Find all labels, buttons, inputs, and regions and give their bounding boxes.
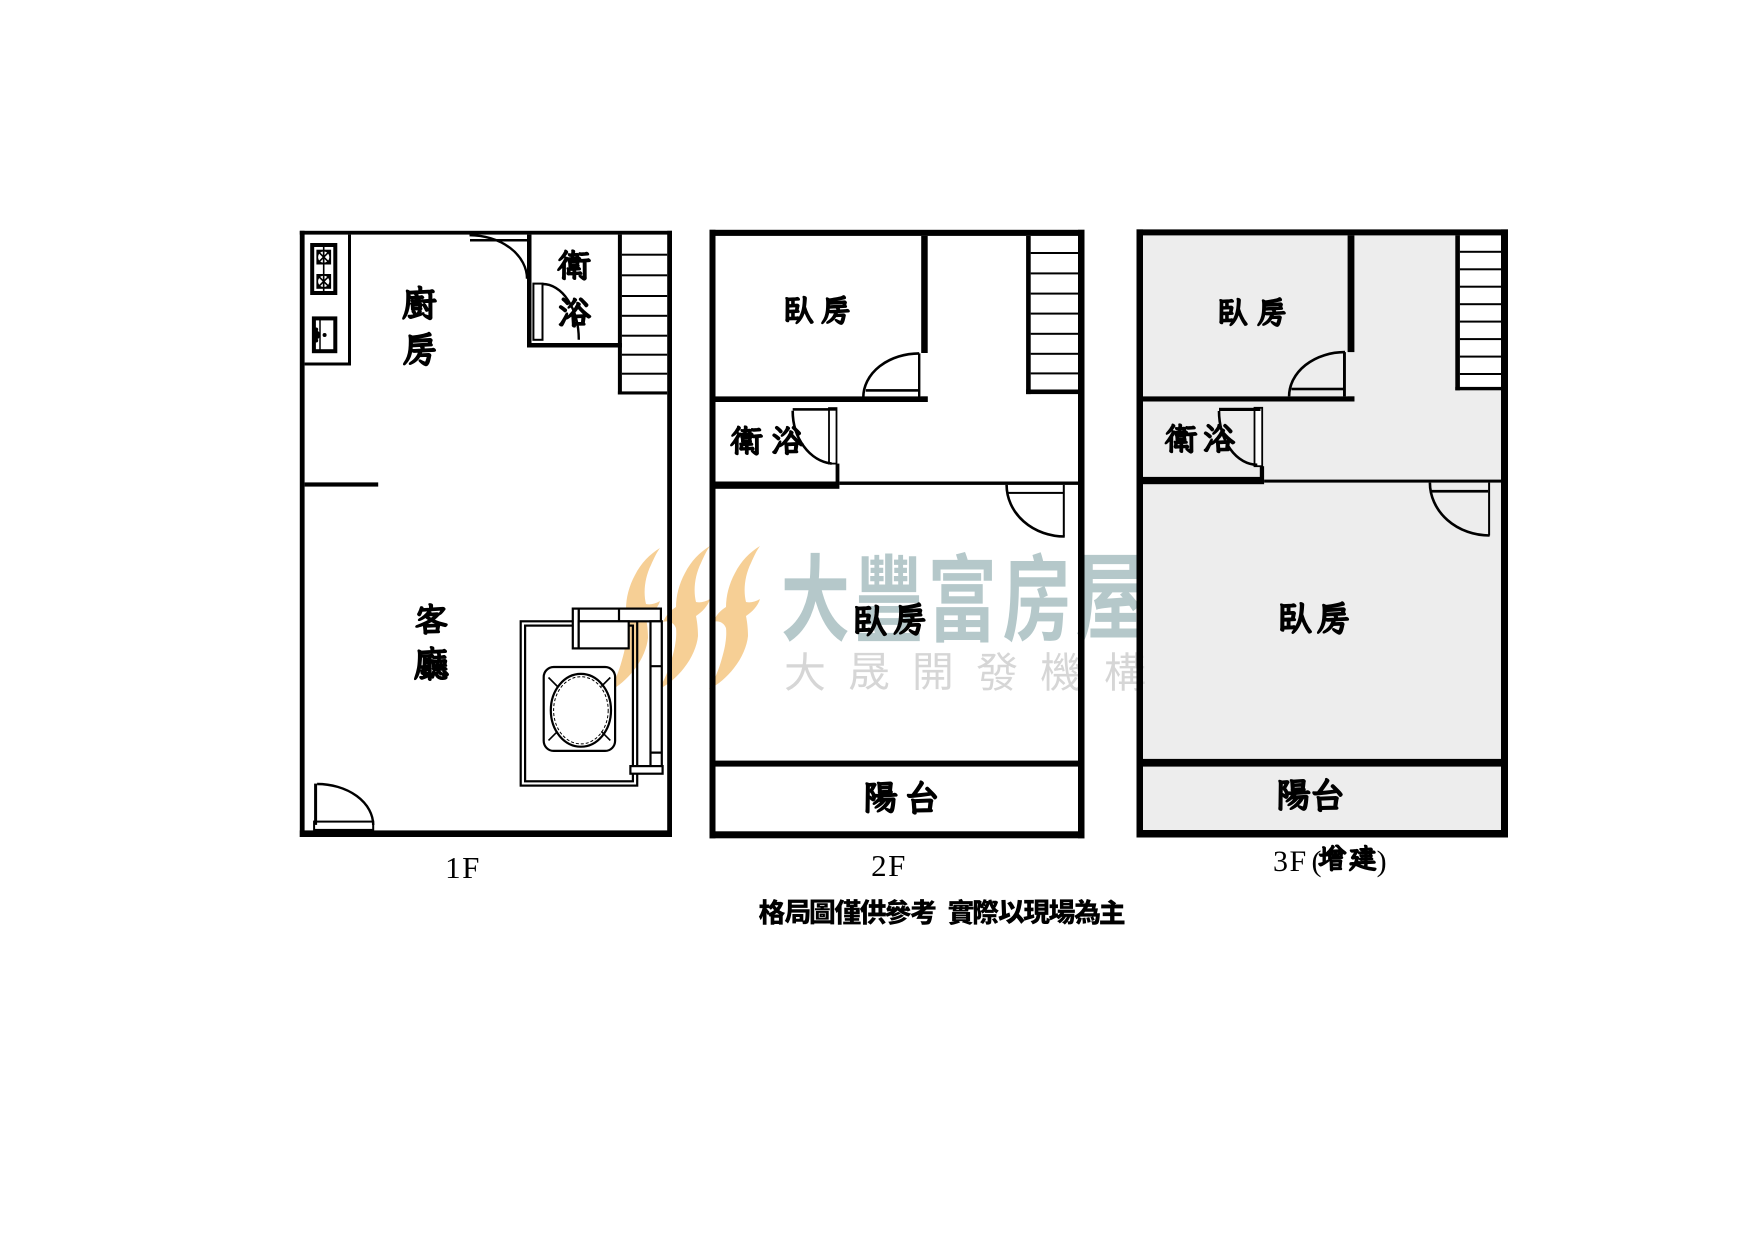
svg-text:(: ( (1312, 845, 1324, 878)
svg-text:1F: 1F (445, 850, 481, 885)
svg-text:3F: 3F (1273, 845, 1308, 878)
svg-text:2F: 2F (871, 848, 907, 883)
svg-text:): ) (1377, 845, 1389, 878)
